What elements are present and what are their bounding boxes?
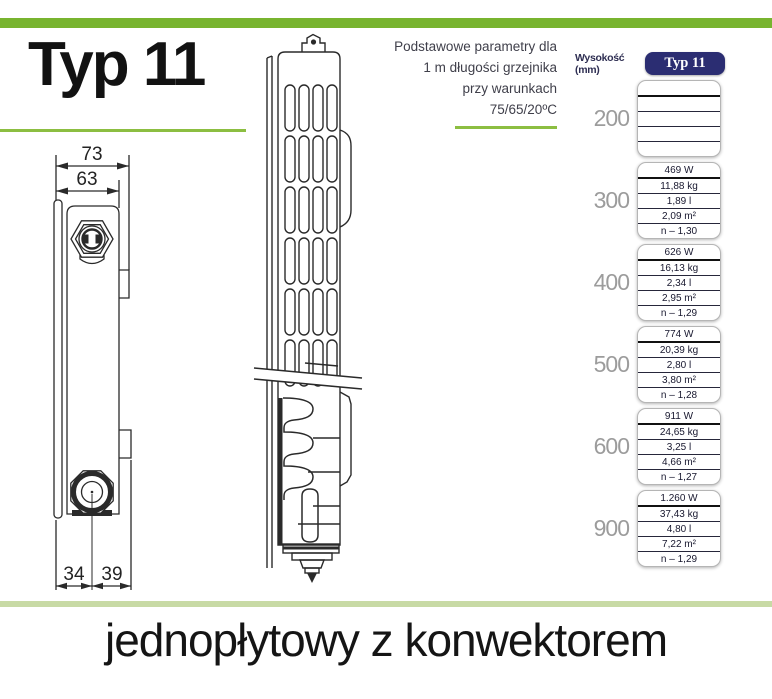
- params-note-line: Podstawowe parametry dla: [377, 36, 557, 57]
- spec-cell-group: 911 W 24,65 kg 3,25 l 4,66 m² n – 1,27: [637, 408, 721, 485]
- spec-cell-group: 626 W 16,13 kg 2,34 l 2,95 m² n – 1,29: [637, 244, 721, 321]
- spec-cell: 37,43 kg: [638, 507, 720, 522]
- spec-table: Wysokość (mm) Typ 11 200 300 469 W 11,88…: [575, 52, 731, 567]
- spec-cell: n – 1,28: [638, 388, 720, 402]
- type-header-badge: Typ 11: [645, 52, 725, 75]
- spec-cell: 774 W: [638, 327, 720, 343]
- table-row: 300 469 W 11,88 kg 1,89 l 2,09 m² n – 1,…: [575, 162, 731, 239]
- side-view-drawing: [250, 30, 375, 600]
- spec-cell: 2,95 m²: [638, 291, 720, 306]
- spec-cell: n – 1,29: [638, 552, 720, 566]
- row-height-label: 900: [575, 490, 637, 567]
- table-row: 500 774 W 20,39 kg 2,80 l 3,80 m² n – 1,…: [575, 326, 731, 403]
- dimension-label-bottom-right: 39: [101, 564, 122, 585]
- row-height-label: 500: [575, 326, 637, 403]
- table-header: Wysokość (mm) Typ 11: [575, 52, 731, 75]
- spec-cell-group: 774 W 20,39 kg 2,80 l 3,80 m² n – 1,28: [637, 326, 721, 403]
- spec-cell: 2,34 l: [638, 276, 720, 291]
- spec-cell: 2,80 l: [638, 358, 720, 373]
- title-underline: [0, 129, 246, 132]
- spec-cell: 3,25 l: [638, 440, 720, 455]
- params-note: Podstawowe parametry dla 1 m długości gr…: [377, 36, 557, 120]
- spec-cell: 1,89 l: [638, 194, 720, 209]
- spec-cell: [638, 142, 720, 156]
- params-note-line: 75/65/20ºC: [377, 99, 557, 120]
- spec-cell: 24,65 kg: [638, 425, 720, 440]
- row-height-label: 400: [575, 244, 637, 321]
- bottom-divider: [0, 601, 772, 607]
- row-height-label: 200: [575, 80, 637, 157]
- spec-cell: 911 W: [638, 409, 720, 425]
- spec-cell-group: 1.260 W 37,43 kg 4,80 l 7,22 m² n – 1,29: [637, 490, 721, 567]
- spec-cell: n – 1,29: [638, 306, 720, 320]
- spec-cell: [638, 97, 720, 112]
- spec-cell: 2,09 m²: [638, 209, 720, 224]
- spec-cell: n – 1,30: [638, 224, 720, 238]
- table-row: 900 1.260 W 37,43 kg 4,80 l 7,22 m² n – …: [575, 490, 731, 567]
- spec-cell: 469 W: [638, 163, 720, 179]
- spec-cell: 16,13 kg: [638, 261, 720, 276]
- catalog-page: Typ 11 73 63: [0, 0, 772, 699]
- spec-cell: [638, 112, 720, 127]
- table-row: 200: [575, 80, 731, 157]
- spec-cell-group: [637, 80, 721, 157]
- spec-cell: n – 1,27: [638, 470, 720, 484]
- spec-cell: 626 W: [638, 245, 720, 261]
- page-title: Typ 11: [28, 34, 204, 96]
- table-row: 600 911 W 24,65 kg 3,25 l 4,66 m² n – 1,…: [575, 408, 731, 485]
- cross-section-drawing: 73 63: [25, 142, 205, 597]
- spec-cell: [638, 81, 720, 97]
- height-column-header: Wysokość (mm): [575, 52, 641, 76]
- spec-cell: 4,80 l: [638, 522, 720, 537]
- spec-cell-group: 469 W 11,88 kg 1,89 l 2,09 m² n – 1,30: [637, 162, 721, 239]
- spec-cell: 3,80 m²: [638, 373, 720, 388]
- spec-cell: 7,22 m²: [638, 537, 720, 552]
- params-note-line: 1 m długości grzejnika: [377, 57, 557, 78]
- row-height-label: 300: [575, 162, 637, 239]
- top-accent-band: [0, 18, 772, 28]
- dimension-label-bottom-left: 34: [63, 564, 85, 585]
- params-underline: [455, 126, 557, 129]
- dimension-label-outer-width: 73: [81, 144, 102, 165]
- bottom-caption: jednopłytowy z konwektorem: [0, 613, 772, 667]
- table-row: 400 626 W 16,13 kg 2,34 l 2,95 m² n – 1,…: [575, 244, 731, 321]
- params-note-line: przy warunkach: [377, 78, 557, 99]
- row-height-label: 600: [575, 408, 637, 485]
- dimension-label-inner-width: 63: [76, 169, 97, 190]
- spec-cell: 4,66 m²: [638, 455, 720, 470]
- spec-cell: 20,39 kg: [638, 343, 720, 358]
- spec-cell: 11,88 kg: [638, 179, 720, 194]
- spec-cell: [638, 127, 720, 142]
- spec-cell: 1.260 W: [638, 491, 720, 507]
